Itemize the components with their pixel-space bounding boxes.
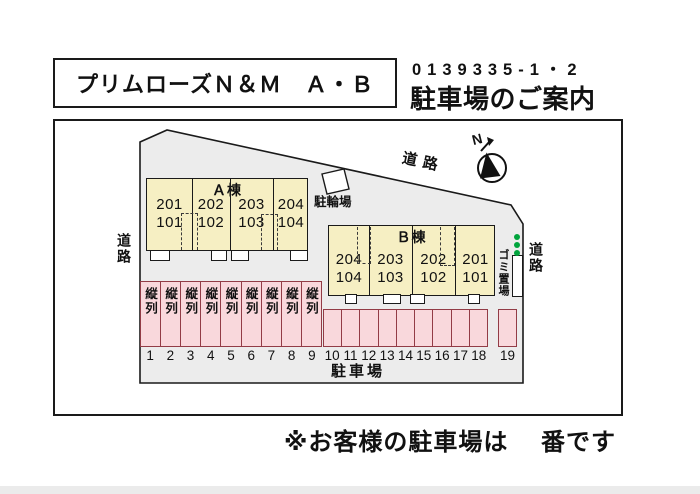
parking-numbers-left: 1 2 3 4 5 6 7 8 9 [140,348,322,363]
parking-space-12 [360,310,378,346]
parking-number: 3 [180,348,200,363]
parking-number: 19 [492,348,523,363]
building-b-unit-4: 201 101 [455,251,496,286]
stair-dashed-outline [440,227,455,266]
parking-number: 1 [140,348,160,363]
tandem-parking-block: 縦列 縦列 縦列 縦列 縦列 縦列 縦列 縦列 縦列 [140,281,322,347]
page-title: プリムローズＮ＆Ｍ Ａ・Ｂ [76,67,374,99]
parking-number: 4 [201,348,221,363]
building-a-unit-4: 204 104 [273,196,309,231]
parking-space-5: 縦列 [221,282,241,346]
footer-note-prefix: ※お客様の駐車場は [284,422,508,457]
parking-number: 17 [451,348,469,363]
parking-number-19: 19 [492,348,523,363]
road-label-right: 道路 [526,242,546,274]
parking-number: 6 [241,348,261,363]
footer-note-suffix: 番です [541,422,616,457]
page-subtitle: 駐車場のご案内 [410,79,596,116]
parking-number: 15 [415,348,433,363]
main-parking-block [323,309,488,347]
bicycle-parking-label: 駐輪場 [314,191,352,210]
page-title-box: プリムローズＮ＆Ｍ Ａ・Ｂ [53,58,397,108]
entrance-tab [383,294,401,304]
entrance-tab [150,250,170,261]
stair-dashed-outline [357,227,371,264]
garbage-area-label: ゴミ置場 [495,249,511,297]
building-b: Ｂ棟 204 104 203 103 202 102 201 101 [328,225,495,296]
entrance-tab [345,294,357,304]
parking-number: 5 [221,348,241,363]
parking-number: 9 [302,348,322,363]
parking-space-19 [498,309,517,347]
stair-dashed-outline [261,214,278,250]
parking-space-11 [342,310,360,346]
green-dot [514,250,520,256]
parking-number: 2 [160,348,180,363]
green-dot [514,234,520,240]
parking-number: 18 [470,348,488,363]
parking-space-16 [433,310,451,346]
parking-space-18 [470,310,487,346]
parking-space-10 [324,310,342,346]
parking-number: 16 [433,348,451,363]
parking-space-14 [397,310,415,346]
entrance-tab [211,250,227,261]
parking-number: 14 [396,348,414,363]
parking-space-17 [452,310,470,346]
scan-edge-band [0,486,700,494]
parking-space-4: 縦列 [201,282,221,346]
parking-space-7: 縦列 [262,282,282,346]
parking-space-2: 縦列 [161,282,181,346]
parking-space-8: 縦列 [282,282,302,346]
parking-space-1: 縦列 [141,282,161,346]
entrance-tab [231,250,249,261]
parking-number: 7 [261,348,281,363]
parking-space-13 [379,310,397,346]
road-label-left: 道路 [114,233,134,265]
stair-dashed-outline [181,213,198,250]
parking-space-15 [415,310,433,346]
entrance-tab [468,294,480,304]
parking-area-label: 駐車場 [331,360,385,381]
building-b-unit-2: 203 103 [369,251,412,286]
parking-space-9: 縦列 [302,282,321,346]
entrance-tab [410,294,425,304]
parking-space-6: 縦列 [242,282,262,346]
parking-number: 8 [282,348,302,363]
entrance-tab [290,250,308,261]
parking-space-3: 縦列 [181,282,201,346]
parking-guide-page: プリムローズＮ＆Ｍ Ａ・Ｂ 0139335-1・2 駐車場のご案内 道路 道路 … [0,0,700,494]
document-code: 0139335-1・2 [412,56,583,80]
garbage-box [512,255,523,297]
building-a: Ａ棟 201 101 202 102 203 103 204 104 [146,178,308,251]
green-dot [514,242,520,248]
